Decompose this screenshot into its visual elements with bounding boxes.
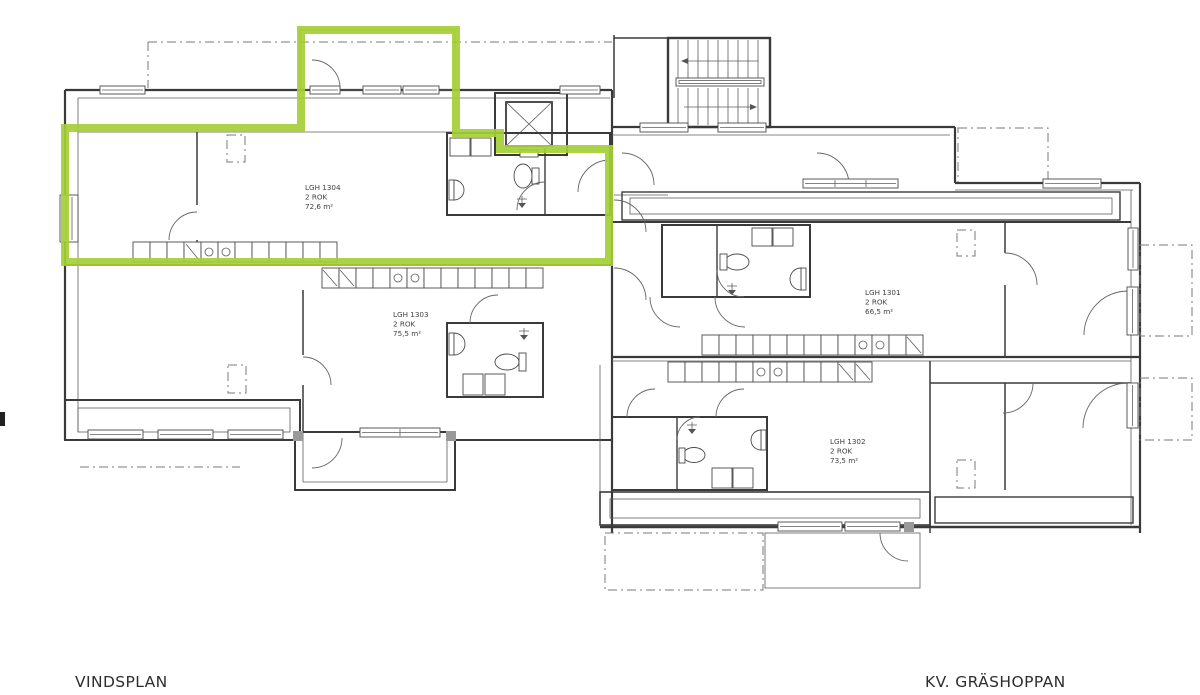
- terrace-outline: [605, 533, 763, 590]
- window-icon: [100, 86, 145, 94]
- window-icon: [1043, 179, 1101, 188]
- footer: VINDSPLAN KV. GRÄSHOPPAN: [75, 672, 1066, 691]
- balcony-outline: [765, 533, 920, 588]
- balcony-outline: [1140, 378, 1192, 440]
- balcony-outline: [1140, 245, 1192, 336]
- block-title: KV. GRÄSHOPPAN: [925, 672, 1066, 691]
- apartment-regions: [65, 98, 1140, 525]
- window-icon: [640, 123, 688, 132]
- apartment-region-lgh-1304[interactable]: [65, 98, 610, 262]
- window-icon: [403, 86, 439, 94]
- window-icon: [560, 86, 600, 94]
- window-icon: [718, 123, 766, 132]
- window-icon: [363, 86, 401, 94]
- floor-plan-page: LGH 1304 2 ROK 72,6 m² LGH 1303 2 ROK 75…: [0, 0, 1200, 695]
- floor-plan-title: VINDSPLAN: [75, 673, 168, 691]
- apartment-region-lgh-1303[interactable]: [65, 265, 610, 440]
- floor-plan-canvas: LGH 1304 2 ROK 72,6 m² LGH 1303 2 ROK 75…: [0, 0, 1200, 695]
- edge-mark: [0, 412, 5, 426]
- window-icon: [310, 86, 340, 94]
- window-icon: [803, 179, 898, 188]
- apartment-region-lgh-1302[interactable]: [600, 361, 1140, 525]
- stairwell: [614, 35, 770, 195]
